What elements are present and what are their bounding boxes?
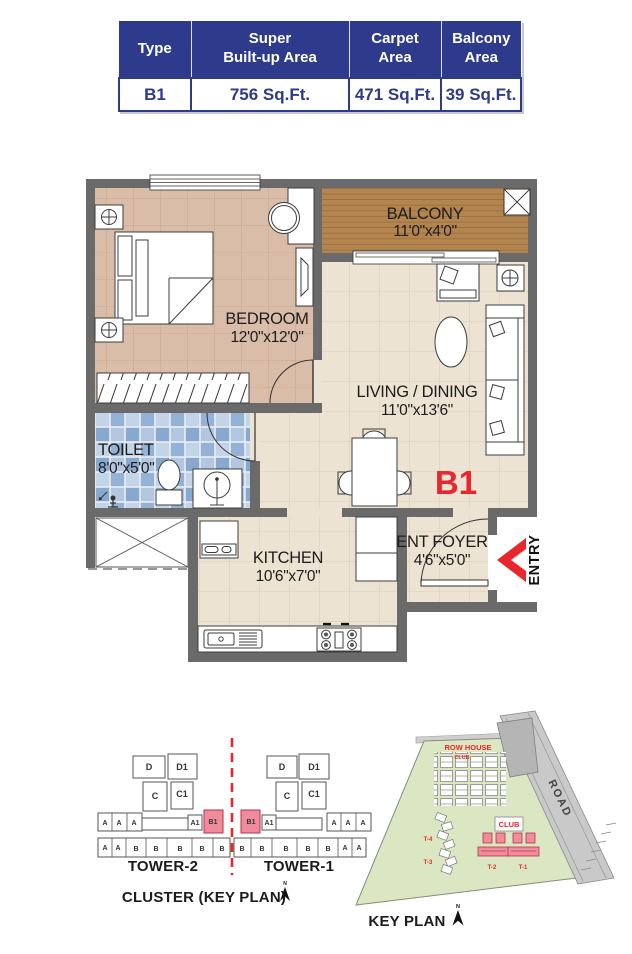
- svg-text:C1: C1: [176, 789, 188, 799]
- tower-1-label: TOWER-1: [264, 858, 334, 875]
- t3-label: T-3: [424, 860, 433, 866]
- tower-2-label: TOWER-2: [128, 858, 198, 875]
- svg-text:B: B: [305, 846, 310, 853]
- bed: [115, 232, 213, 324]
- toilet-dims: 8'0"x5'0": [98, 460, 154, 477]
- svg-text:B: B: [133, 846, 138, 853]
- stove: [317, 624, 361, 651]
- kitchen-dims: 10'6"x7'0": [256, 568, 321, 585]
- svg-text:B: B: [259, 846, 264, 853]
- svg-text:C: C: [284, 791, 291, 801]
- pouf: [435, 317, 467, 367]
- north-arrow-icon: N: [453, 904, 464, 926]
- svg-text:N: N: [456, 904, 460, 910]
- toilet-label: TOILET: [98, 441, 154, 459]
- cell-carpet: 471 Sq.Ft.: [349, 78, 441, 111]
- svg-text:B: B: [153, 846, 158, 853]
- svg-text:C: C: [152, 791, 159, 801]
- svg-text:N: N: [283, 881, 287, 887]
- bedroom-window: [150, 175, 260, 190]
- balcony-duct: [504, 189, 530, 215]
- svg-text:B1: B1: [247, 819, 256, 826]
- svg-text:B: B: [199, 846, 204, 853]
- sofa: [486, 305, 524, 455]
- living-label: LIVING / DINING: [356, 383, 477, 401]
- tower-2-footprint: D D1 C C1 A A A A1 B1 A A B B B B B: [98, 754, 230, 857]
- svg-text:D1: D1: [176, 762, 188, 772]
- entry-label: ENTRY: [527, 534, 543, 585]
- cell-super-builtup: 756 Sq.Ft.: [191, 78, 349, 111]
- living-dims: 11'0"x13'6": [381, 402, 453, 419]
- svg-text:A1: A1: [265, 820, 274, 827]
- row-house-label: ROW HOUSE: [444, 743, 491, 752]
- balcony-sliding-door: [353, 251, 499, 264]
- svg-text:D: D: [279, 762, 286, 772]
- area-table: Type Super Built-up Area Carpet Area Bal…: [118, 21, 522, 112]
- svg-text:B: B: [325, 846, 330, 853]
- header-type: Type: [119, 21, 191, 78]
- club-box: CLUB: [495, 817, 523, 831]
- site-key-plan: ROAD ROW HOUSE CLUB CLUB: [350, 700, 632, 954]
- foyer-label: ENT FOYER: [396, 533, 488, 551]
- wardrobe: [97, 373, 249, 403]
- sink: [204, 630, 262, 648]
- header-carpet: Carpet Area: [349, 21, 441, 78]
- tv-unit: [296, 248, 313, 306]
- living-chair: [437, 264, 479, 301]
- bedroom-label: BEDROOM: [225, 310, 308, 328]
- svg-text:A: A: [116, 820, 121, 827]
- page: Type Super Built-up Area Carpet Area Bal…: [0, 0, 632, 954]
- svg-text:B1: B1: [209, 819, 218, 826]
- wc: [156, 460, 182, 505]
- cluster-plan-title: CLUSTER (KEY PLAN): [122, 889, 286, 906]
- header-super-builtup: Super Built-up Area: [191, 21, 349, 78]
- header-type-line1: Type: [121, 40, 189, 59]
- cell-unit-type: B1: [119, 78, 191, 111]
- svg-text:A: A: [331, 820, 336, 827]
- planter-box: [497, 265, 524, 291]
- nightstand-bottom: [95, 318, 123, 342]
- club-upper-label: CLUB: [454, 755, 469, 761]
- key-plan-title: KEY PLAN: [368, 913, 445, 930]
- cell-balcony: 39 Sq.Ft.: [441, 78, 521, 111]
- area-table-data-row: B1 756 Sq.Ft. 471 Sq.Ft. 39 Sq.Ft.: [119, 78, 521, 111]
- t1-label: T-1: [519, 865, 528, 871]
- kitchen-label: KITCHEN: [253, 549, 323, 567]
- header-balcony: Balcony Area: [441, 21, 521, 78]
- kitchen-counter: [198, 624, 397, 652]
- floor-plan: BALCONY 11'0"x4'0" BEDROOM 12'0"x12'0" L…: [80, 172, 552, 672]
- bedroom-dims: 12'0"x12'0": [230, 329, 303, 346]
- svg-text:B: B: [283, 846, 288, 853]
- nightstand-top: [95, 205, 123, 229]
- utility-shaft: [88, 518, 190, 569]
- kitchen-appliance: [200, 521, 238, 558]
- area-table-header-row: Type Super Built-up Area Carpet Area Bal…: [119, 21, 521, 78]
- washbasin: [193, 469, 242, 508]
- svg-text:C1: C1: [308, 789, 320, 799]
- svg-text:A: A: [131, 820, 136, 827]
- kitchen-duct: [356, 517, 397, 581]
- svg-text:D1: D1: [308, 762, 320, 772]
- t4-label: T-4: [424, 837, 433, 843]
- balcony-dims: 11'0"x4'0": [393, 223, 457, 240]
- svg-text:B: B: [239, 846, 244, 853]
- svg-text:B: B: [177, 846, 182, 853]
- row-houses: [434, 752, 506, 806]
- club-label: CLUB: [499, 820, 520, 829]
- svg-text:A: A: [342, 845, 347, 852]
- svg-text:A: A: [115, 845, 120, 852]
- svg-text:A1: A1: [191, 820, 200, 827]
- svg-text:A: A: [102, 845, 107, 852]
- t2-label: T-2: [488, 865, 497, 871]
- balcony-label: BALCONY: [387, 205, 464, 223]
- svg-text:D: D: [146, 762, 153, 772]
- unit-type-label: B1: [435, 464, 477, 501]
- svg-text:A: A: [102, 820, 107, 827]
- svg-text:B: B: [219, 846, 224, 853]
- foyer-dims: 4'6"x5'0": [414, 552, 470, 569]
